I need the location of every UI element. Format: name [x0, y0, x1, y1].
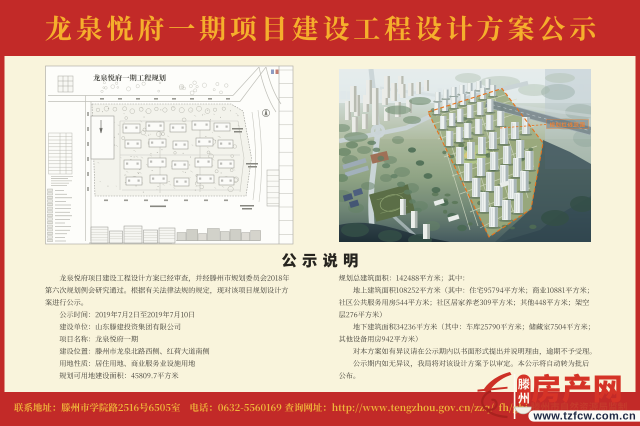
- svg-text:www.tzfcw.com.cn: www.tzfcw.com.cn: [533, 411, 637, 423]
